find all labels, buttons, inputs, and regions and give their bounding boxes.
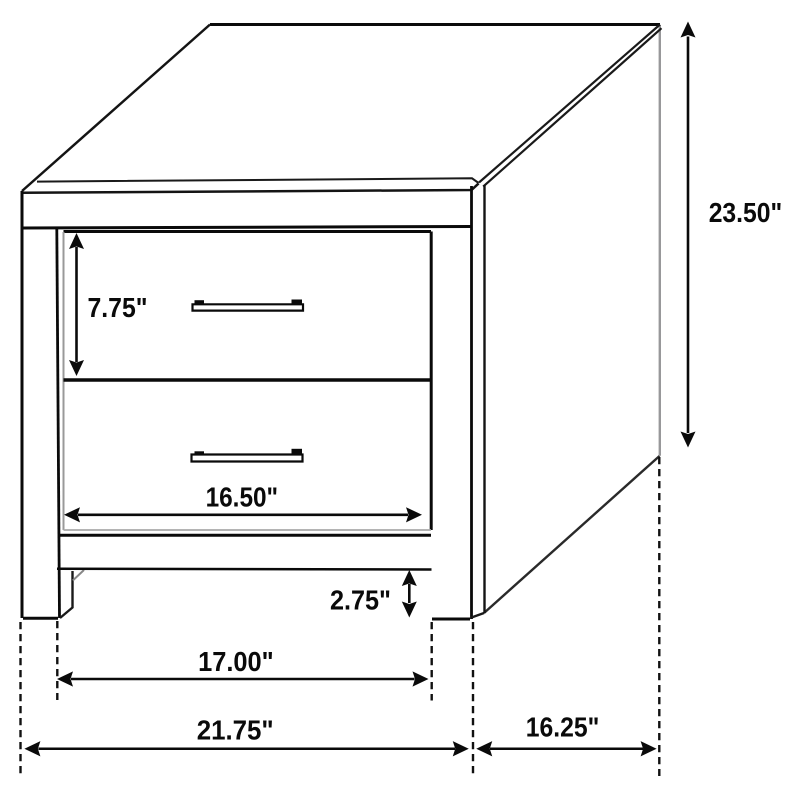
svg-text:17.00": 17.00" (198, 646, 274, 677)
svg-text:21.75": 21.75" (197, 715, 274, 746)
svg-text:2.75": 2.75" (330, 584, 391, 615)
svg-text:23.50": 23.50" (709, 197, 783, 228)
svg-text:16.50": 16.50" (206, 481, 279, 512)
svg-text:16.25": 16.25" (526, 711, 600, 742)
svg-text:7.75": 7.75" (88, 292, 148, 323)
